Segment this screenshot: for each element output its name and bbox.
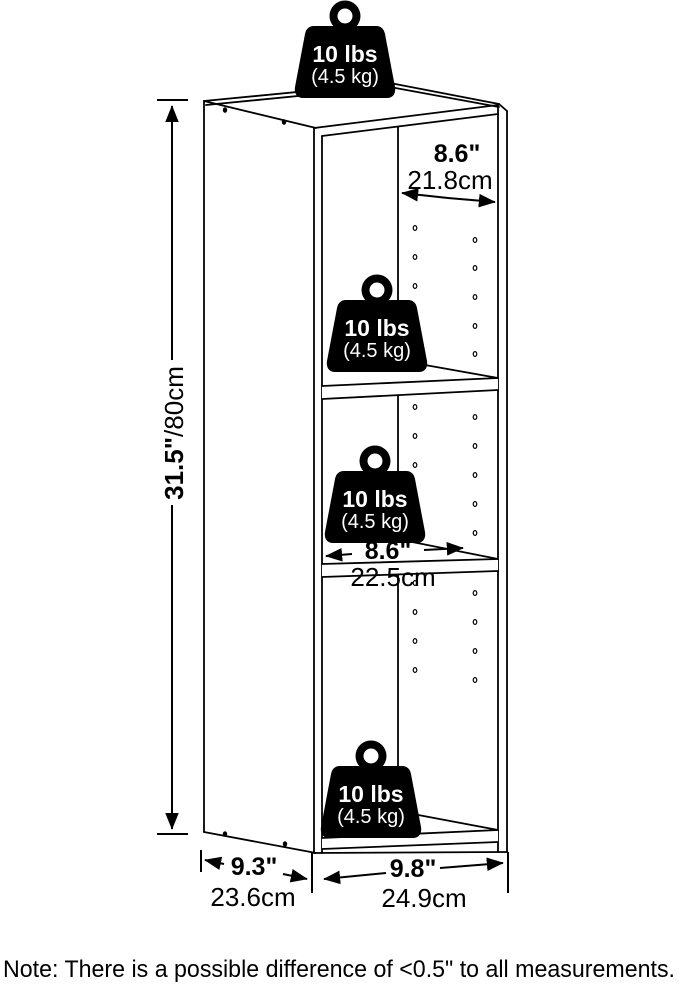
top-width-inches-label: 8.6" xyxy=(434,140,481,168)
width-inches-label: 9.8" xyxy=(390,855,437,883)
peg-hole xyxy=(413,405,417,410)
weight-kg-label: (4.5 kg) xyxy=(311,66,379,88)
middle-width-cm-label: 22.5cm xyxy=(350,562,435,592)
shelf-peg-holes xyxy=(413,226,477,683)
top-shelf-width-dimension: 8.6" 21.8cm xyxy=(402,140,495,202)
weight-icon-bottom-shelf: 10 lbs (4.5 kg) xyxy=(321,741,421,839)
depth-inches-label: 9.3" xyxy=(231,853,278,881)
peg-hole xyxy=(473,649,477,654)
peg-hole xyxy=(413,226,417,231)
peg-hole xyxy=(413,463,417,468)
peg-hole xyxy=(473,295,477,300)
peg-hole xyxy=(473,473,477,478)
height-dimension-label: 31.5"/80cm xyxy=(159,366,189,500)
weight-icon-top: 10 lbs (4.5 kg) xyxy=(295,1,395,99)
peg-hole xyxy=(473,678,477,683)
peg-hole xyxy=(413,434,417,439)
weight-kg-label: (4.5 kg) xyxy=(337,806,405,828)
depth-cm-label: 23.6cm xyxy=(210,882,295,912)
weight-kg-label: (4.5 kg) xyxy=(343,340,411,362)
peg-hole xyxy=(473,444,477,449)
measurement-note: Note: There is a possible difference of … xyxy=(3,956,675,983)
weight-lbs-label: 10 lbs xyxy=(312,41,377,67)
weight-lbs-label: 10 lbs xyxy=(338,781,403,807)
weight-lbs-label: 10 lbs xyxy=(342,486,407,512)
peg-hole xyxy=(413,668,417,673)
weight-icon-middle-shelf: 10 lbs (4.5 kg) xyxy=(325,446,425,544)
peg-hole xyxy=(413,255,417,260)
peg-hole xyxy=(413,639,417,644)
peg-hole xyxy=(413,284,417,289)
width-dimension: 9.8" 24.9cm xyxy=(324,852,508,913)
peg-hole xyxy=(473,324,477,329)
depth-dimension: 9.3" 23.6cm xyxy=(201,850,312,912)
peg-hole xyxy=(413,610,417,615)
weight-icon-upper-shelf: 10 lbs (4.5 kg) xyxy=(327,275,427,373)
width-cm-label: 24.9cm xyxy=(381,883,466,913)
weight-kg-label: (4.5 kg) xyxy=(341,511,409,533)
shelf-diagram-canvas: 10 lbs (4.5 kg) 10 lbs (4.5 kg) 10 lbs (… xyxy=(0,0,679,984)
peg-hole xyxy=(473,266,477,271)
peg-hole xyxy=(473,620,477,625)
peg-hole xyxy=(473,591,477,596)
peg-hole xyxy=(473,352,477,357)
height-dimension: 31.5"/80cm xyxy=(157,100,189,834)
middle-width-inches-label: 8.6" xyxy=(365,537,412,565)
product-dimension-diagram: 10 lbs (4.5 kg) 10 lbs (4.5 kg) 10 lbs (… xyxy=(0,0,679,984)
peg-hole xyxy=(473,502,477,507)
peg-hole xyxy=(473,415,477,420)
weight-lbs-label: 10 lbs xyxy=(344,315,409,341)
screw-holes xyxy=(223,107,287,847)
top-width-cm-label: 21.8cm xyxy=(407,165,492,195)
peg-hole xyxy=(473,531,477,536)
peg-hole xyxy=(473,238,477,243)
